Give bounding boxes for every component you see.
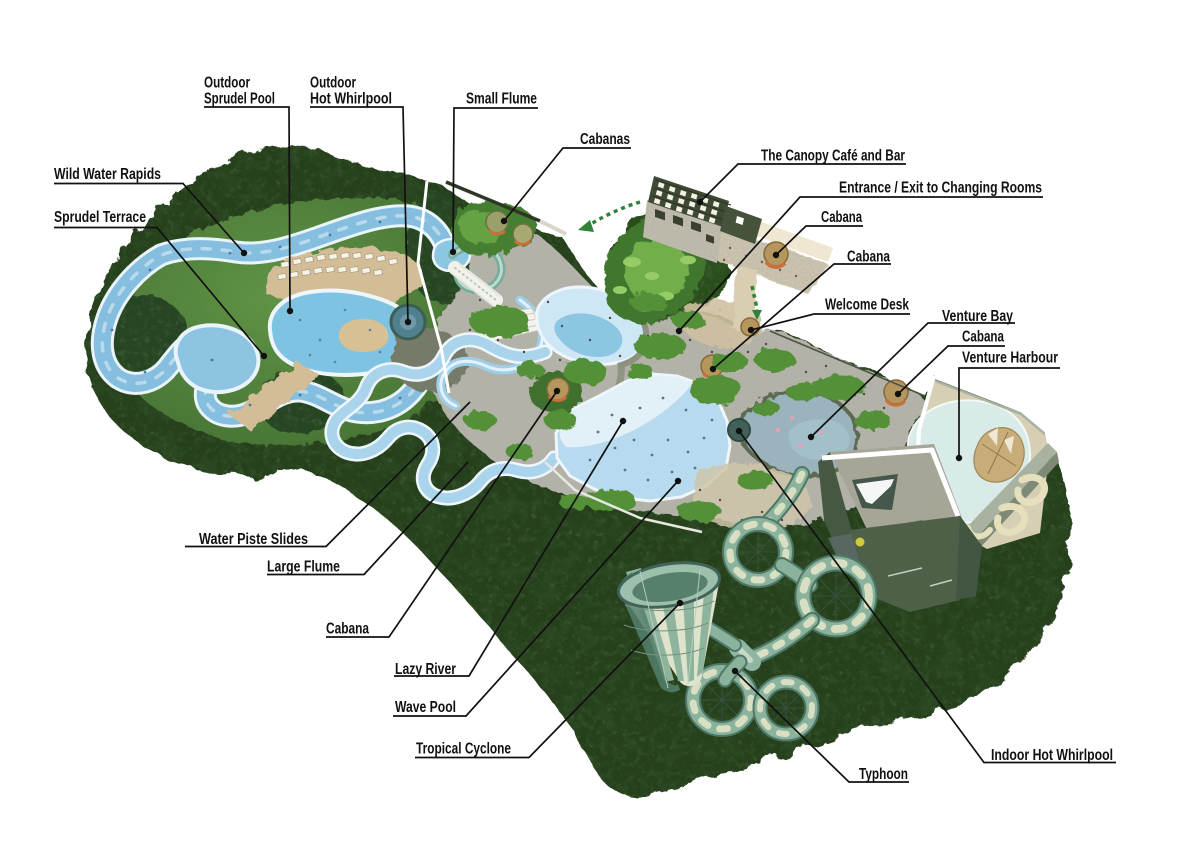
svg-text:Outdoor: Outdoor: [204, 75, 250, 92]
svg-text:Large Flume: Large Flume: [267, 559, 340, 576]
svg-text:Small Flume: Small Flume: [466, 91, 537, 108]
svg-text:Venture Harbour: Venture Harbour: [962, 350, 1058, 367]
svg-text:Wild Water Rapids: Wild Water Rapids: [54, 166, 161, 183]
svg-text:Tropical Cyclone: Tropical Cyclone: [416, 741, 511, 758]
svg-text:Water Piste Slides: Water Piste Slides: [199, 531, 308, 548]
svg-text:Cabana: Cabana: [821, 209, 862, 226]
svg-text:Cabana: Cabana: [962, 329, 1004, 346]
svg-text:Sprudel Pool: Sprudel Pool: [204, 91, 275, 108]
svg-text:Hot Whirlpool: Hot Whirlpool: [310, 91, 392, 108]
svg-text:Indoor Hot Whirlpool: Indoor Hot Whirlpool: [991, 747, 1113, 764]
svg-text:The Canopy Café and Bar: The Canopy Café and Bar: [761, 148, 905, 165]
svg-text:Wave Pool: Wave Pool: [395, 699, 456, 716]
svg-text:Cabana: Cabana: [326, 621, 369, 638]
svg-text:Entrance / Exit to Changing Ro: Entrance / Exit to Changing Rooms: [839, 180, 1042, 197]
svg-text:Typhoon: Typhoon: [859, 766, 908, 783]
svg-text:Cabana: Cabana: [847, 249, 890, 266]
svg-text:Cabanas: Cabanas: [580, 131, 630, 148]
svg-text:Sprudel Terrace: Sprudel Terrace: [54, 209, 146, 226]
svg-text:Outdoor: Outdoor: [310, 75, 356, 92]
svg-text:Welcome Desk: Welcome Desk: [825, 297, 909, 314]
